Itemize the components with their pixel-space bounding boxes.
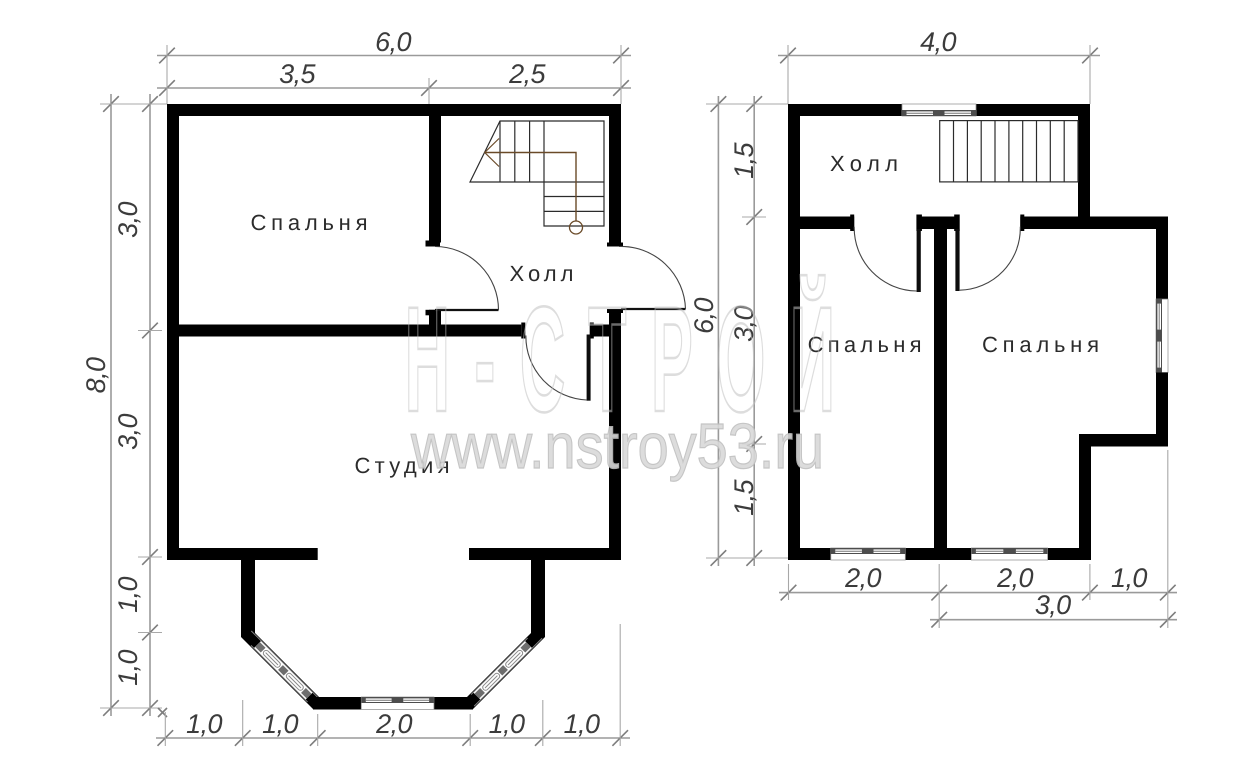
svg-text:1,0: 1,0	[113, 650, 143, 686]
svg-text:8,0: 8,0	[81, 357, 111, 393]
svg-text:2,5: 2,5	[508, 59, 546, 89]
svg-text:4,0: 4,0	[920, 27, 956, 57]
svg-text:3,0: 3,0	[1035, 590, 1071, 620]
svg-text:2,0: 2,0	[996, 563, 1033, 593]
svg-text:1,0: 1,0	[186, 709, 222, 739]
svg-text:1,0: 1,0	[262, 709, 298, 739]
svg-text:3,5: 3,5	[279, 59, 316, 89]
svg-text:1,0: 1,0	[489, 709, 525, 739]
svg-text:www.nstroy53.ru: www.nstroy53.ru	[410, 410, 824, 482]
svg-text:6,0: 6,0	[375, 27, 411, 57]
svg-text:1,5: 1,5	[729, 142, 759, 179]
svg-text:2,0: 2,0	[375, 709, 412, 739]
svg-text:1,0: 1,0	[1111, 563, 1147, 593]
svg-text:1,5: 1,5	[729, 479, 759, 516]
svg-text:3,0: 3,0	[113, 414, 143, 450]
svg-text:1,0: 1,0	[113, 577, 143, 613]
svg-text:3,0: 3,0	[113, 202, 143, 238]
svg-text:1,0: 1,0	[564, 709, 600, 739]
svg-text:2,0: 2,0	[844, 563, 881, 593]
